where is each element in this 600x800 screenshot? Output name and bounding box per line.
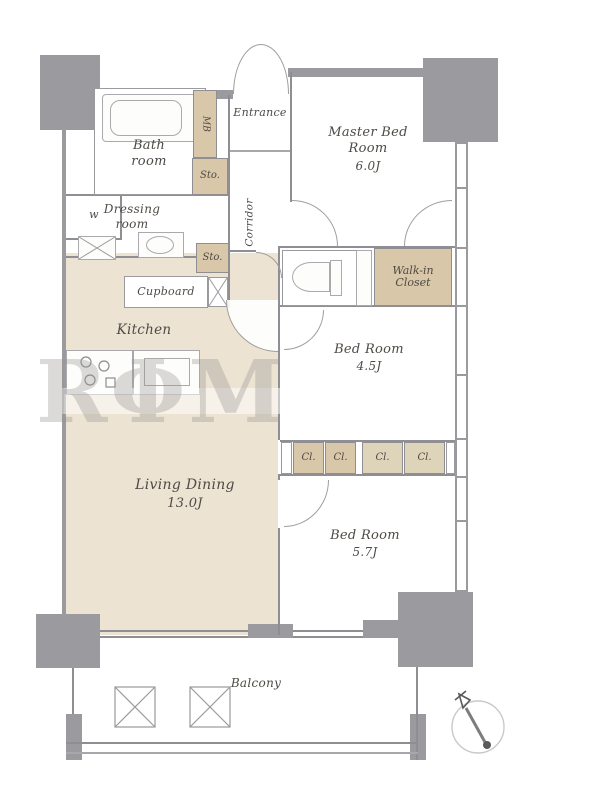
- master-bedroom-name: Master Bed Room: [313, 125, 423, 158]
- master-bedroom-size: 6.0J: [298, 159, 438, 174]
- entrance-label: Entrance: [220, 106, 300, 120]
- living-dining-label: Living Dining 13.0J: [118, 477, 252, 512]
- bedroom-45-size: 4.5J: [310, 359, 428, 374]
- kitchen-label: Kitchen: [102, 322, 186, 339]
- bedroom-45-name: Bed Room: [310, 342, 428, 358]
- floorplan-image: Cupboard MB Sto. Sto. Walk-in Closet Cl.…: [0, 0, 600, 800]
- master-bedroom-label: Master Bed Room 6.0J: [298, 125, 438, 174]
- escape-hatch-icon: [115, 687, 155, 727]
- escape-hatch-icon: [190, 687, 230, 727]
- bedroom-45-label: Bed Room 4.5J: [310, 342, 428, 374]
- watermark-band: [60, 388, 280, 414]
- bathroom-label: Bath room: [116, 138, 182, 171]
- living-dining-size: 13.0J: [118, 496, 252, 512]
- compass-icon: [452, 691, 504, 753]
- cabinet-cross-icon: [209, 278, 227, 306]
- balcony-label: Balcony: [214, 676, 298, 691]
- bedroom-57-name: Bed Room: [306, 528, 424, 544]
- washing-pan-cross-icon: [79, 237, 115, 259]
- corridor-label: Corridor: [243, 178, 256, 268]
- stove-burners-icon: [81, 357, 115, 387]
- washroom-label: w: [80, 208, 108, 222]
- bedroom-57-size: 5.7J: [306, 545, 424, 560]
- bedroom-57-label: Bed Room 5.7J: [306, 528, 424, 560]
- living-dining-name: Living Dining: [118, 477, 252, 495]
